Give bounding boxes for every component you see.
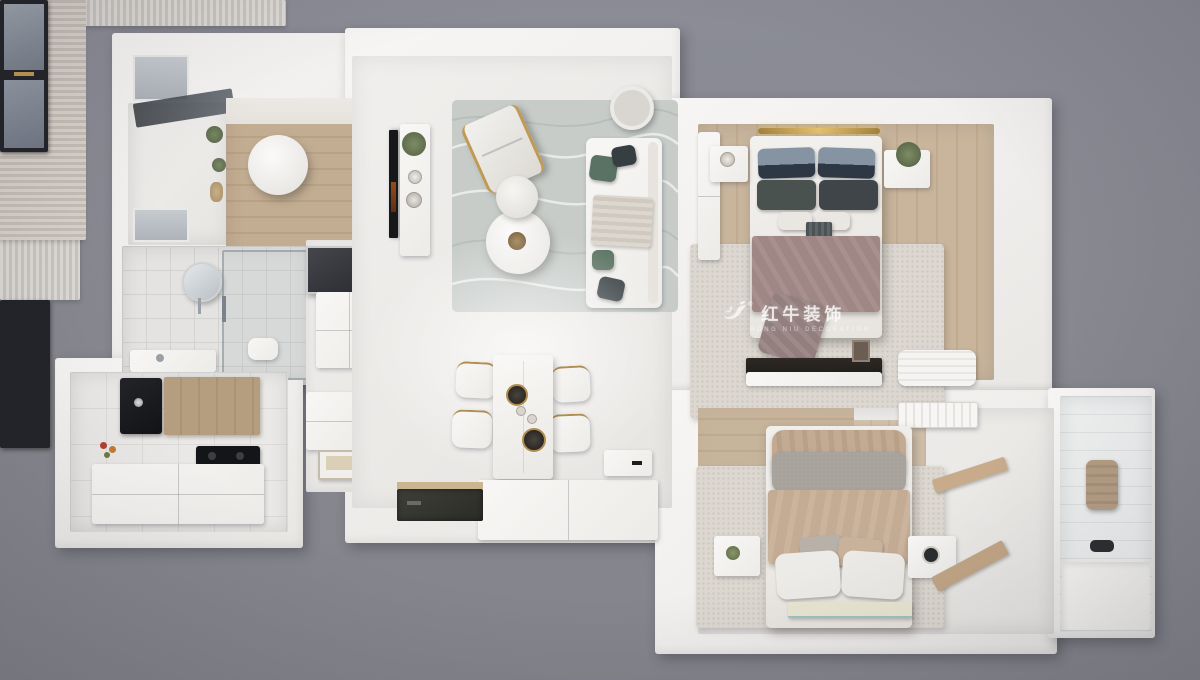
shoe-cabinet [604,450,652,476]
plant [206,126,223,143]
round-mirror [182,262,222,302]
watermark: ® 红牛装饰 HONG NIU DECORATION [722,300,852,333]
pillow-sage [592,250,614,270]
plant [212,158,226,172]
vase [406,192,422,208]
air-conditioner [898,402,978,428]
side-stool [610,86,654,130]
tv [389,130,398,238]
watermark-subtitle: HONG NIU DECORATION [750,327,852,333]
faucet [156,354,164,362]
pillow-blue [757,147,815,179]
bathroom2-window [0,0,48,152]
dining-table [493,355,553,479]
frosted-panel [133,55,189,101]
floorplan-scene: ® 红牛装饰 HONG NIU DECORATION [0,0,1200,680]
floor-drain [1090,540,1114,552]
pillow-white [774,550,841,600]
bay-window [0,300,50,448]
shower-enclosure [222,250,310,380]
pillow-blue [817,147,875,179]
cup [527,414,537,424]
dining-chair [455,361,497,399]
dining-chair [451,409,492,448]
mirror-stand [198,298,201,314]
plant [726,546,740,560]
fruit [100,442,107,449]
gray-pillow-band [772,452,906,492]
round-table [248,135,308,195]
pillow-dark-sage [757,180,816,210]
table-plant [508,232,526,250]
kitchen-island [92,464,264,524]
fruit [104,452,110,458]
desk-cabinet [746,372,882,386]
plant [402,132,426,156]
door-threshold [397,482,483,489]
vanity-counter [130,350,216,372]
dining-chair [549,413,590,452]
sideboard [478,480,658,540]
sofa-throw [591,194,654,247]
coffee-table-small [496,176,538,218]
towel [1086,460,1118,510]
cup [516,406,526,416]
vase [408,170,422,184]
door-mat [397,489,483,521]
dining-chair [551,365,591,403]
faucet [134,398,143,407]
plate [522,428,546,452]
table-lamp [720,152,735,167]
fruit [109,446,116,453]
bench [898,350,976,386]
foot-mat [788,602,912,618]
plate [506,384,528,406]
bath-step [1062,562,1150,630]
bull-logo-icon [722,300,747,325]
pillow-dark-sage [819,180,878,210]
pillow-white [840,550,905,600]
frosted-panel [133,208,189,242]
decor-clock [922,546,940,564]
shower-glass-handle [222,296,226,322]
cooktop [196,446,260,466]
registered-mark: ® [748,302,752,308]
watermark-brand-text: 红牛装饰 [761,300,845,325]
plant [896,142,921,167]
dried-branch-decor [210,182,223,202]
wood-countertop [164,377,260,435]
headboard-light [758,128,880,134]
photo-frame [852,340,870,362]
toilet [248,338,278,360]
